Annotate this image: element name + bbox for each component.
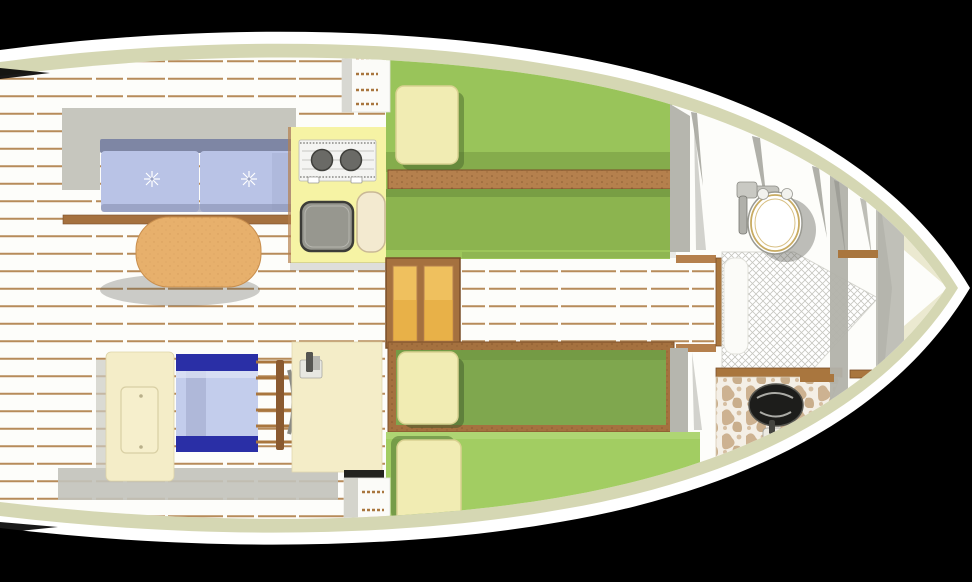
seat-shadow-line bbox=[386, 189, 670, 197]
galley bbox=[288, 127, 392, 271]
toilet-bowl bbox=[748, 192, 802, 254]
two-burner-stove bbox=[299, 140, 376, 183]
vanity-basin bbox=[749, 384, 803, 426]
bow-sill-left bbox=[800, 374, 834, 382]
cushion-front-edge bbox=[101, 204, 297, 212]
passage-plank-floor bbox=[462, 256, 714, 348]
cutting-board bbox=[357, 192, 385, 252]
tuft-button-left bbox=[144, 171, 160, 187]
stove-knob-right bbox=[351, 177, 362, 183]
port-berth-seat bbox=[386, 189, 670, 259]
table-grain bbox=[136, 217, 261, 287]
counter-shadow bbox=[290, 262, 392, 271]
aft-platform-shadow bbox=[58, 468, 338, 500]
quarter-berth-pillow bbox=[398, 352, 458, 424]
hatch-pin-top bbox=[139, 394, 143, 398]
head-door-sill bbox=[716, 258, 722, 346]
shelf-rail-grain bbox=[388, 170, 672, 189]
toilet-hinge-right bbox=[782, 189, 793, 200]
bunk-sheet-fold bbox=[176, 371, 258, 378]
bunk-head-band bbox=[176, 354, 258, 371]
galley-sink bbox=[301, 202, 353, 251]
burner-left bbox=[312, 150, 333, 171]
settee-backrail bbox=[100, 139, 298, 153]
bow-sill-top bbox=[838, 250, 878, 258]
stove-knob-left bbox=[308, 177, 319, 183]
head-bulkhead-aft-bottom bbox=[670, 348, 688, 432]
toilet-pump-body bbox=[737, 182, 757, 198]
port-berth-pillow bbox=[396, 86, 458, 164]
companionway-steps bbox=[386, 258, 460, 348]
head-bulkhead-aft-top bbox=[670, 104, 690, 252]
floorplan-stage bbox=[0, 0, 972, 582]
tread-shade-left bbox=[393, 300, 417, 341]
floorplan-svg bbox=[0, 0, 972, 582]
passage-shadow bbox=[462, 252, 676, 258]
tread-shade-right bbox=[424, 300, 453, 341]
burner-right bbox=[341, 150, 362, 171]
toilet-hinge-left bbox=[758, 189, 769, 200]
blue-bunk bbox=[176, 354, 258, 452]
tuft-button-right bbox=[241, 171, 257, 187]
sill-top bbox=[676, 255, 716, 263]
hatch-pin-bottom bbox=[139, 445, 143, 449]
ladder-rail bbox=[276, 360, 284, 450]
bunk-foot-band bbox=[176, 436, 258, 452]
shower-seat bbox=[724, 258, 748, 354]
